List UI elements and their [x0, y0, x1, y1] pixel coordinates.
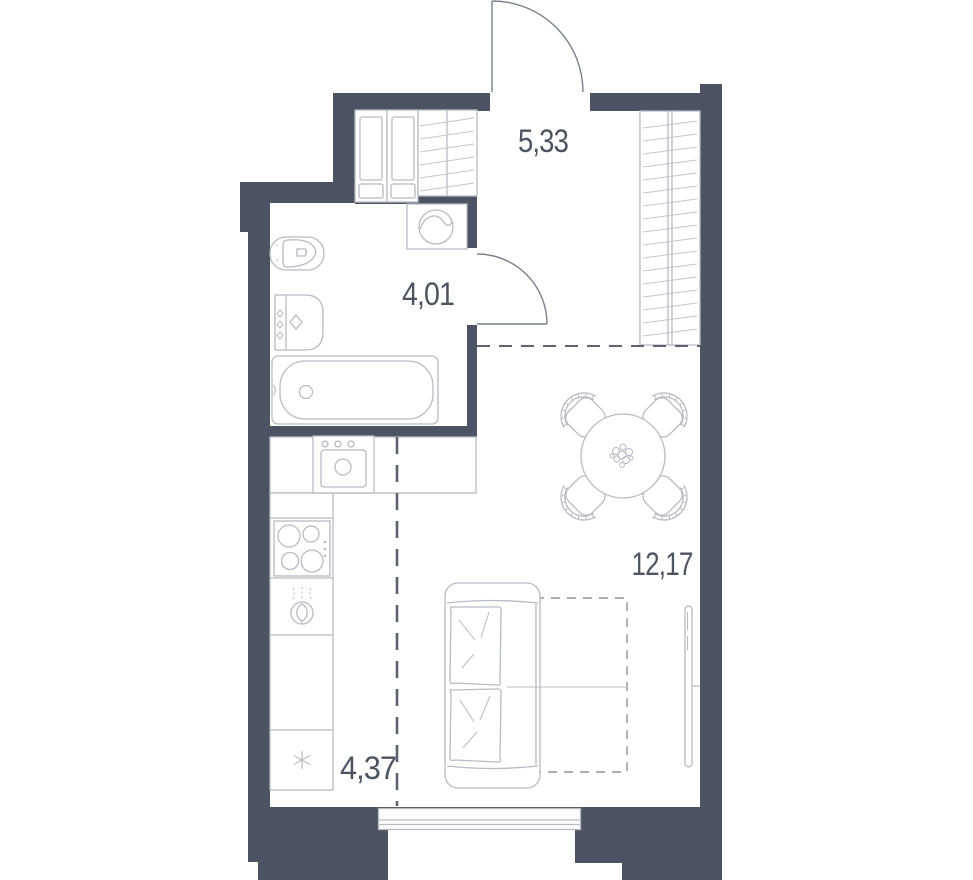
hall-closet — [640, 111, 700, 345]
wall-hall-left — [333, 111, 355, 183]
wall-bath-right-lower — [467, 325, 477, 437]
wall-top-left — [333, 93, 490, 111]
door-swing-arc — [477, 254, 547, 324]
floor-plan: 5,33 4,01 12,17 4,37 — [0, 0, 973, 880]
tv — [685, 606, 700, 767]
doors — [477, 1, 583, 324]
sofa — [445, 583, 627, 788]
living-room-area-label: 12,17 — [632, 546, 693, 582]
door-swing-arc — [492, 1, 583, 92]
bathtub — [272, 356, 438, 424]
bed-zone — [535, 598, 627, 772]
kitchen-sink — [313, 436, 374, 493]
stove — [274, 521, 330, 576]
washbasin — [275, 295, 323, 350]
wall-bath-top — [240, 182, 355, 203]
sofa-pillow — [450, 607, 501, 685]
sofa-pillow — [450, 689, 501, 762]
washing-machine — [407, 204, 467, 249]
wall-right — [700, 111, 722, 811]
entry-door — [492, 1, 583, 92]
wall-top-right-corner — [700, 84, 722, 111]
toilet — [270, 237, 324, 270]
bathroom-door — [477, 254, 547, 324]
hallway-area-label: 5,33 — [518, 123, 568, 159]
dining-table — [581, 414, 665, 498]
window — [378, 808, 581, 830]
wall-left — [248, 203, 270, 880]
wardrobe-cabinets — [355, 110, 418, 202]
kitchen-area-label: 4,37 — [340, 750, 396, 786]
wall-bath-right-upper — [467, 204, 477, 248]
window-opening — [378, 808, 581, 830]
wardrobe-shelves — [418, 110, 477, 196]
bathroom-area-label: 4,01 — [402, 276, 454, 312]
left-corner-step — [230, 862, 258, 880]
